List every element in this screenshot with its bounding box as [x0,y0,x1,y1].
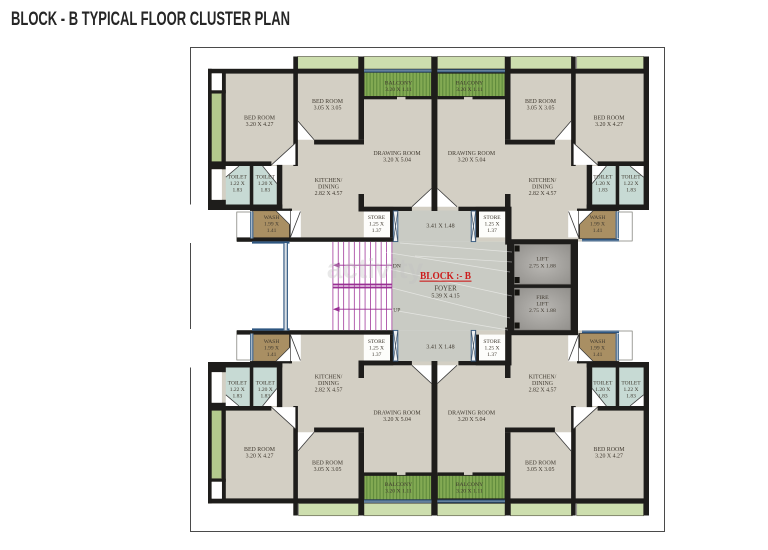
svg-text:KITCHEN/: KITCHEN/ [529,178,557,184]
svg-text:1.37: 1.37 [372,228,382,234]
svg-text:3.41 X 1.48: 3.41 X 1.48 [426,224,454,230]
svg-text:1.83: 1.83 [260,394,270,400]
svg-text:BED ROOM: BED ROOM [594,447,626,453]
svg-text:KITCHEN/: KITCHEN/ [315,375,343,381]
svg-text:BALCONY: BALCONY [456,81,484,87]
svg-text:BALCONY: BALCONY [385,482,413,488]
svg-text:3.20 X 5.04: 3.20 X 5.04 [383,417,411,423]
svg-text:2.82 X 4.57: 2.82 X 4.57 [529,388,557,394]
svg-text:WASH: WASH [590,215,606,221]
svg-text:3.20 X 1.11: 3.20 X 1.11 [385,489,412,495]
svg-text:DRAWING ROOM: DRAWING ROOM [448,151,496,157]
svg-text:1.83: 1.83 [232,188,242,194]
svg-text:TOILET: TOILET [621,381,641,387]
svg-text:DRAWING ROOM: DRAWING ROOM [373,151,421,157]
svg-text:3.05 X 3.05: 3.05 X 3.05 [527,467,555,473]
svg-text:1.83: 1.83 [598,188,608,194]
svg-text:1.83: 1.83 [598,394,608,400]
svg-text:DINING: DINING [318,381,340,387]
svg-text:2.75 X 1.88: 2.75 X 1.88 [529,308,556,314]
svg-text:DRAWING ROOM: DRAWING ROOM [448,411,496,417]
svg-text:BED ROOM: BED ROOM [312,461,344,467]
svg-text:STORE: STORE [368,215,386,221]
svg-text:DN: DN [393,263,401,269]
svg-text:1.41: 1.41 [267,352,277,358]
svg-text:1.41: 1.41 [267,228,277,234]
svg-text:1.99 X: 1.99 X [590,222,605,228]
svg-text:1.22 X: 1.22 X [624,387,639,393]
svg-text:3.41 X 1.48: 3.41 X 1.48 [426,345,454,351]
svg-text:1.83: 1.83 [626,394,636,400]
svg-text:2.82 X 4.57: 2.82 X 4.57 [315,388,343,394]
svg-text:1.25 X: 1.25 X [485,346,500,352]
svg-text:2.82 X 4.57: 2.82 X 4.57 [529,191,557,197]
svg-text:3.20 X 5.04: 3.20 X 5.04 [458,417,486,423]
svg-text:TOILET: TOILET [621,175,641,181]
svg-text:WASH: WASH [264,215,280,221]
svg-text:DINING: DINING [318,185,340,191]
svg-text:1.20 X: 1.20 X [595,387,610,393]
svg-text:3.20 X 1.11: 3.20 X 1.11 [456,87,483,93]
svg-text:1.83: 1.83 [260,188,270,194]
svg-text:1.20 X: 1.20 X [258,181,273,187]
svg-text:1.22 X: 1.22 X [230,181,245,187]
svg-text:1.83: 1.83 [232,394,242,400]
svg-text:1.25 X: 1.25 X [369,222,384,228]
svg-text:1.20 X: 1.20 X [258,387,273,393]
svg-text:3.05 X 3.05: 3.05 X 3.05 [527,106,555,112]
svg-text:TOILET: TOILET [593,175,613,181]
svg-text:3.20 X 1.11: 3.20 X 1.11 [456,489,483,495]
svg-text:BED ROOM: BED ROOM [244,447,276,453]
svg-text:LIFT: LIFT [536,301,549,307]
svg-text:BLOCK - B TYPICAL FLOOR CLUSTE: BLOCK - B TYPICAL FLOOR CLUSTER PLAN [11,8,290,30]
svg-text:TOILET: TOILET [256,175,276,181]
svg-text:3.20 X 4.27: 3.20 X 4.27 [595,122,623,128]
svg-text:STORE: STORE [483,339,501,345]
svg-text:BALCONY: BALCONY [385,81,413,87]
svg-text:3.20 X 4.27: 3.20 X 4.27 [246,122,274,128]
svg-text:TOILET: TOILET [228,381,248,387]
svg-text:3.20 X 5.04: 3.20 X 5.04 [383,158,411,164]
svg-text:KITCHEN/: KITCHEN/ [529,375,557,381]
svg-text:1.37: 1.37 [372,352,382,358]
svg-text:3.05 X 3.05: 3.05 X 3.05 [314,467,342,473]
svg-text:3.20 X 1.11: 3.20 X 1.11 [385,87,412,93]
svg-text:STORE: STORE [368,339,386,345]
svg-text:1.99 X: 1.99 X [264,222,279,228]
svg-text:1.37: 1.37 [487,352,497,358]
svg-text:1.37: 1.37 [487,228,497,234]
svg-text:FOYER: FOYER [434,286,457,293]
svg-text:1.99 X: 1.99 X [264,346,279,352]
svg-text:3.20 X 5.04: 3.20 X 5.04 [458,158,486,164]
svg-text:BED ROOM: BED ROOM [594,116,626,122]
svg-text:BLOCK :- B: BLOCK :- B [420,270,472,282]
svg-text:1.41: 1.41 [593,228,603,234]
svg-text:STORE: STORE [483,215,501,221]
svg-text:2.82 X 4.57: 2.82 X 4.57 [315,191,343,197]
svg-text:DINING: DINING [532,381,554,387]
svg-text:1.83: 1.83 [626,188,636,194]
svg-text:BED ROOM: BED ROOM [525,461,557,467]
svg-text:1.99 X: 1.99 X [590,346,605,352]
svg-text:2.75 X 1.88: 2.75 X 1.88 [529,263,556,269]
svg-text:BALCONY: BALCONY [456,482,484,488]
svg-text:WASH: WASH [590,339,606,345]
svg-text:1.41: 1.41 [593,352,603,358]
svg-text:BED ROOM: BED ROOM [244,116,276,122]
svg-text:UP: UP [393,307,400,313]
svg-text:TOILET: TOILET [593,381,613,387]
svg-text:TOILET: TOILET [256,381,276,387]
svg-text:DRAWING ROOM: DRAWING ROOM [373,411,421,417]
svg-text:LIFT: LIFT [536,257,549,263]
svg-text:3.05 X 3.05: 3.05 X 3.05 [314,106,342,112]
svg-text:1.22 X: 1.22 X [230,387,245,393]
svg-text:KITCHEN/: KITCHEN/ [315,178,343,184]
svg-text:1.25 X: 1.25 X [485,222,500,228]
svg-text:FIRE: FIRE [536,295,549,301]
svg-text:BED ROOM: BED ROOM [312,99,344,105]
svg-text:TOILET: TOILET [228,175,248,181]
svg-text:DINING: DINING [532,185,554,191]
svg-text:WASH: WASH [264,339,280,345]
svg-text:activity: activity [327,253,424,284]
svg-text:3.20 X 4.27: 3.20 X 4.27 [595,454,623,460]
svg-text:BED ROOM: BED ROOM [525,99,557,105]
svg-text:1.25 X: 1.25 X [369,346,384,352]
svg-text:1.22 X: 1.22 X [624,181,639,187]
svg-text:1.20 X: 1.20 X [595,181,610,187]
svg-text:5.39 X 4.15: 5.39 X 4.15 [431,294,459,300]
svg-text:3.20 X 4.27: 3.20 X 4.27 [246,454,274,460]
